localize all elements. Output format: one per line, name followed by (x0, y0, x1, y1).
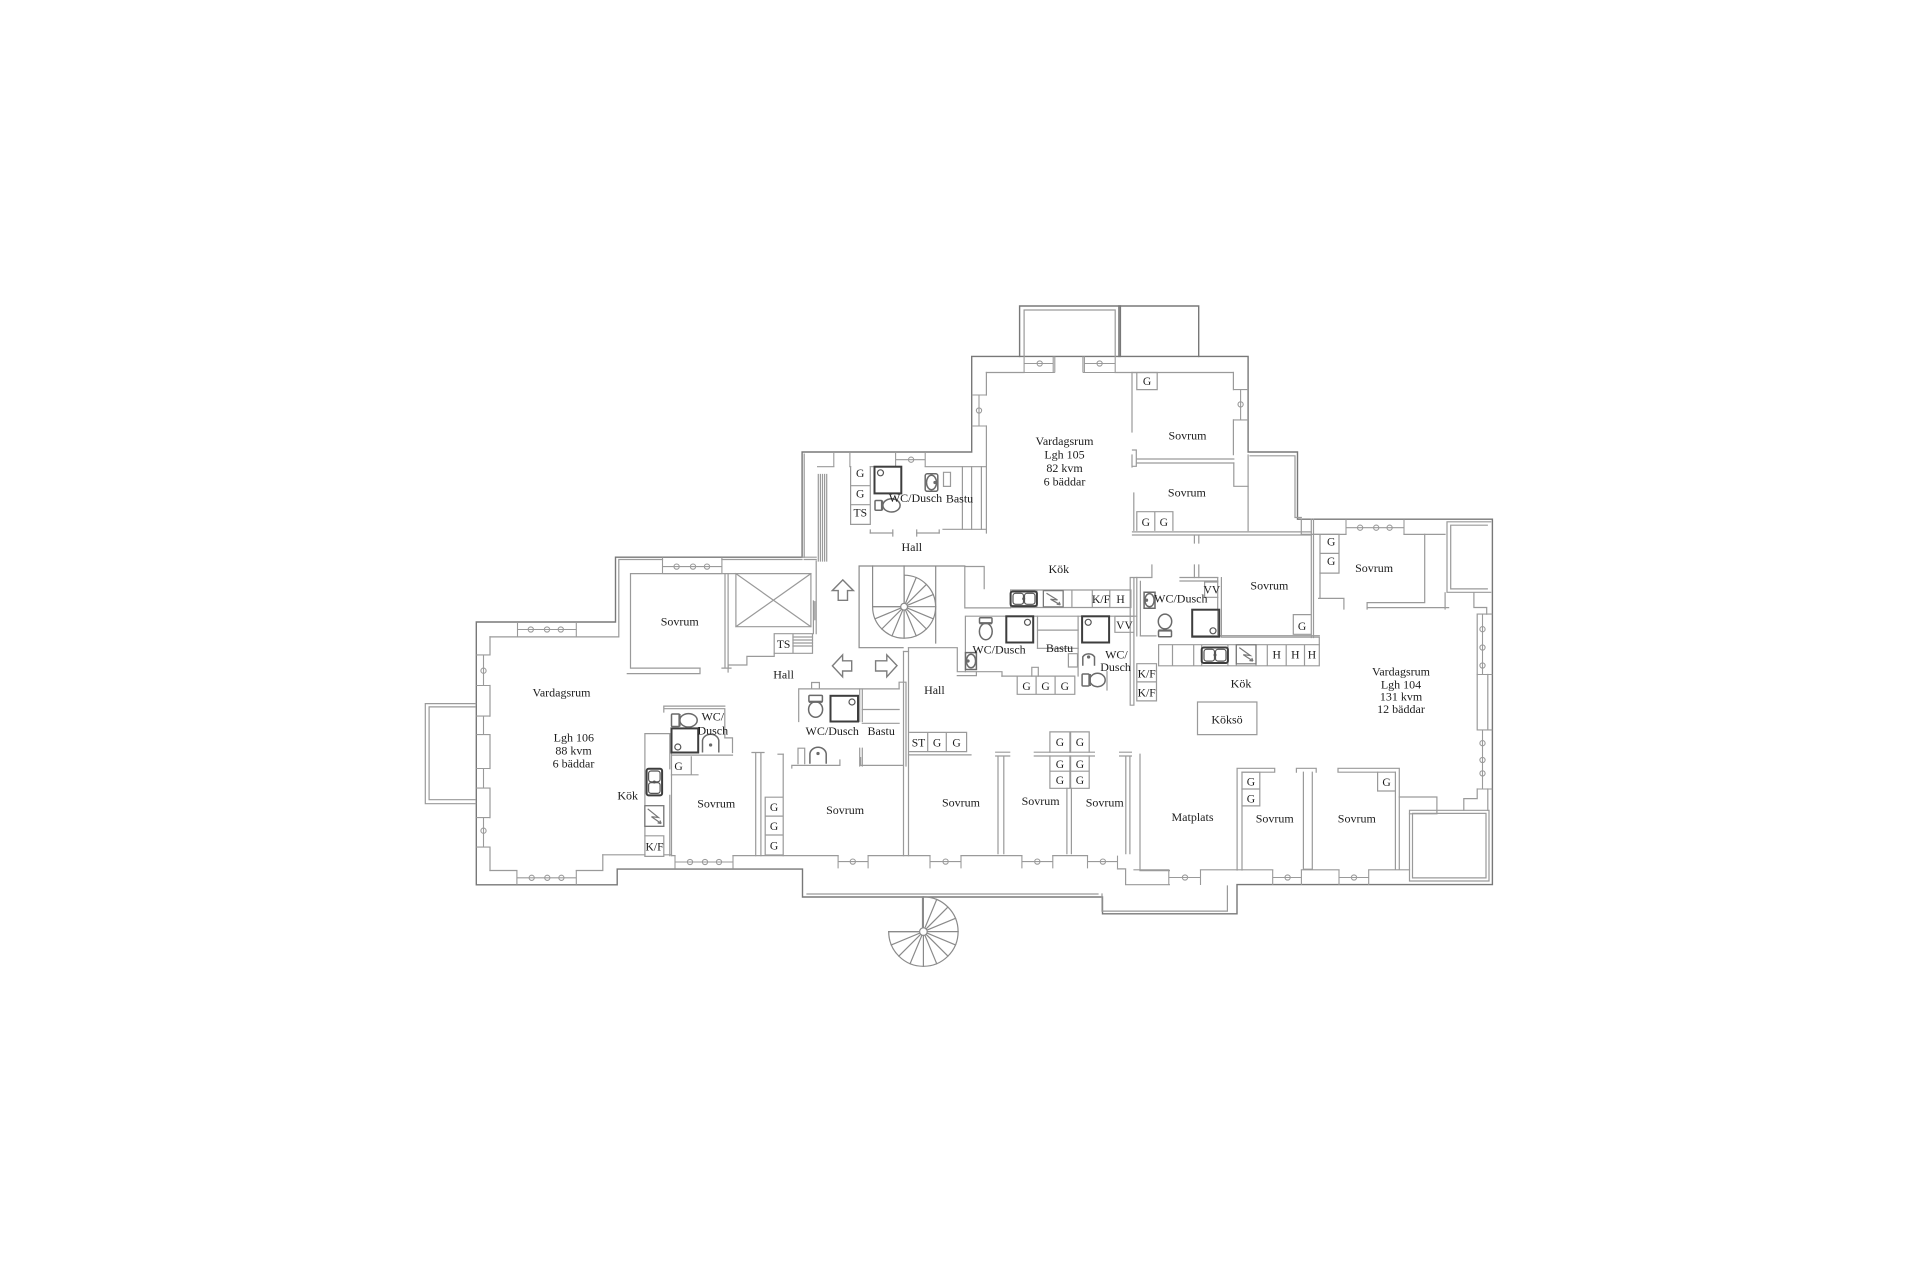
svg-text:G: G (1022, 680, 1031, 693)
svg-text:Köksö: Köksö (1211, 713, 1242, 727)
svg-text:H: H (1291, 648, 1300, 661)
svg-text:Matplats: Matplats (1172, 810, 1214, 824)
svg-text:Sovrum: Sovrum (1022, 794, 1061, 808)
svg-text:H: H (1308, 648, 1317, 661)
svg-text:Dusch: Dusch (697, 723, 728, 737)
svg-text:6 bäddar: 6 bäddar (1044, 475, 1086, 489)
svg-text:Sovrum: Sovrum (942, 796, 981, 810)
svg-text:Sovrum: Sovrum (1256, 812, 1295, 826)
svg-text:H: H (1273, 648, 1282, 661)
svg-text:G: G (1041, 680, 1050, 693)
svg-text:G: G (1247, 793, 1256, 806)
svg-text:G: G (1076, 736, 1085, 749)
svg-text:G: G (1382, 776, 1391, 789)
svg-text:Vardagsrum: Vardagsrum (1036, 434, 1095, 448)
svg-text:G: G (1076, 758, 1085, 771)
svg-text:82 kvm: 82 kvm (1046, 461, 1083, 475)
svg-text:G: G (770, 801, 779, 814)
svg-text:Sovrum: Sovrum (1168, 485, 1207, 499)
svg-text:H: H (1116, 593, 1125, 606)
svg-text:Kök: Kök (1231, 677, 1252, 691)
svg-text:Hall: Hall (773, 668, 794, 682)
svg-text:WC/: WC/ (701, 710, 724, 724)
svg-text:Sovrum: Sovrum (1168, 429, 1207, 443)
svg-text:WC/Dusch: WC/Dusch (806, 724, 859, 738)
svg-text:Hall: Hall (924, 683, 945, 697)
svg-text:WC/Dusch: WC/Dusch (972, 642, 1025, 656)
svg-text:G: G (770, 840, 779, 853)
svg-text:VV: VV (1116, 619, 1133, 632)
svg-text:Bastu: Bastu (946, 491, 973, 505)
svg-text:6 bäddar: 6 bäddar (553, 757, 595, 771)
svg-text:G: G (1061, 680, 1070, 693)
svg-text:Sovrum: Sovrum (661, 615, 700, 629)
svg-text:G: G (1160, 516, 1169, 529)
svg-text:Hall: Hall (901, 540, 922, 554)
svg-text:WC/Dusch: WC/Dusch (889, 491, 942, 505)
svg-text:G: G (1056, 774, 1065, 787)
svg-text:Sovrum: Sovrum (1338, 812, 1377, 826)
svg-text:G: G (1247, 776, 1256, 789)
svg-text:VV: VV (1204, 584, 1221, 597)
svg-text:Dusch: Dusch (1100, 660, 1131, 674)
svg-text:Vardagsrum: Vardagsrum (533, 685, 592, 699)
svg-text:G: G (1327, 555, 1336, 568)
svg-text:K/F: K/F (645, 841, 664, 854)
svg-text:G: G (770, 820, 779, 833)
svg-text:G: G (1143, 375, 1152, 388)
svg-text:ST: ST (912, 737, 926, 750)
svg-text:Sovrum: Sovrum (697, 796, 736, 810)
svg-text:G: G (1056, 758, 1065, 771)
svg-text:G: G (1327, 535, 1336, 548)
svg-text:G: G (1298, 620, 1307, 633)
svg-text:Sovrum: Sovrum (1355, 561, 1394, 575)
svg-text:Sovrum: Sovrum (1086, 796, 1125, 810)
svg-text:G: G (674, 760, 683, 773)
svg-text:K/F: K/F (1138, 687, 1157, 700)
svg-text:G: G (933, 737, 942, 750)
svg-text:K/F: K/F (1138, 668, 1157, 681)
svg-text:Bastu: Bastu (868, 724, 895, 738)
svg-text:Vardagsrum: Vardagsrum (1372, 664, 1431, 678)
svg-text:TS: TS (777, 638, 791, 651)
svg-text:12 bäddar: 12 bäddar (1377, 702, 1425, 716)
svg-text:G: G (1076, 774, 1085, 787)
svg-text:TS: TS (854, 506, 868, 519)
svg-text:G: G (1142, 516, 1151, 529)
svg-text:Bastu: Bastu (1046, 641, 1073, 655)
svg-text:88 kvm: 88 kvm (555, 744, 592, 758)
svg-text:K/F: K/F (1092, 593, 1111, 606)
svg-text:Lgh 106: Lgh 106 (554, 730, 594, 744)
svg-text:G: G (952, 737, 961, 750)
svg-text:Kök: Kök (617, 789, 638, 803)
svg-text:WC/Dusch: WC/Dusch (1154, 591, 1207, 605)
svg-text:Sovrum: Sovrum (1250, 578, 1289, 592)
svg-text:G: G (1056, 736, 1065, 749)
svg-text:G: G (856, 467, 865, 480)
svg-text:Lgh 105: Lgh 105 (1044, 448, 1084, 462)
svg-text:Sovrum: Sovrum (826, 803, 865, 817)
svg-text:Kök: Kök (1048, 562, 1069, 576)
svg-text:G: G (856, 487, 865, 500)
